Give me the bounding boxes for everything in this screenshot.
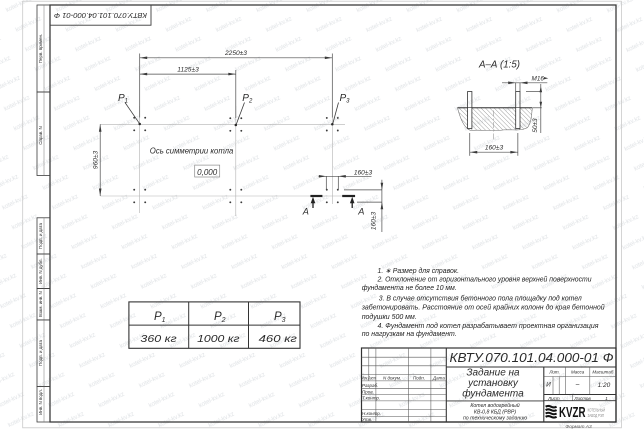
svg-text:КВТУ.070.101.04.000-01 Ф: КВТУ.070.101.04.000-01 Ф [54, 11, 147, 20]
svg-text:Инв. N дубл.: Инв. N дубл. [38, 258, 43, 284]
svg-text:Листов: Листов [573, 396, 591, 401]
svg-text:KVZR: KVZR [559, 405, 586, 421]
svg-text:Подп. и дата: Подп. и дата [38, 223, 43, 249]
svg-text:1125±3: 1125±3 [177, 66, 199, 73]
svg-text:Инв. N подл.: Инв. N подл. [38, 389, 43, 415]
svg-text:забетонировать. Расстояние от: забетонировать. Расстояние от осей крайн… [361, 303, 605, 312]
svg-text:по техническому заданию: по техническому заданию [463, 416, 527, 422]
svg-text:N докум.: N докум. [383, 375, 401, 380]
svg-text:Лит.: Лит. [548, 369, 560, 374]
svg-text:Утв.: Утв. [362, 417, 372, 422]
svg-text:360 кг: 360 кг [140, 333, 176, 345]
svg-text:КОТЕЛЬНЫЙ: КОТЕЛЬНЫЙ [588, 408, 606, 413]
svg-text:Ось симметрии котла: Ось симметрии котла [150, 146, 234, 156]
svg-text:КВТУ.070.101.04.000-01 Ф: КВТУ.070.101.04.000-01 Ф [450, 350, 614, 365]
svg-text:960±3: 960±3 [93, 151, 100, 170]
svg-text:фундамента не более 10 мм.: фундамента не более 10 мм. [362, 283, 457, 292]
svg-text:Н.контр.: Н.контр. [362, 411, 381, 416]
svg-text:2250±3: 2250±3 [224, 50, 247, 57]
svg-text:А–А (1:5): А–А (1:5) [478, 59, 520, 70]
svg-text:Т.контр.: Т.контр. [362, 396, 380, 401]
svg-text:Масштаб: Масштаб [592, 369, 613, 374]
svg-text:160±3: 160±3 [485, 145, 504, 152]
svg-text:Подп. и дата: Подп. и дата [38, 340, 43, 366]
svg-text:фундамента: фундамента [462, 388, 524, 400]
svg-text:3. В случае отсутствия бетонно: 3. В случае отсутствия бетонного пола пл… [379, 293, 582, 302]
svg-text:0,000: 0,000 [197, 168, 218, 177]
svg-text:Взам. инв. N: Взам. инв. N [38, 291, 43, 317]
svg-text:А: А [357, 206, 364, 216]
svg-text:1:20: 1:20 [598, 382, 611, 389]
svg-text:Задание на: Задание на [466, 367, 520, 378]
svg-text:50±3: 50±3 [532, 118, 539, 133]
svg-text:ЗАВОД РЭП: ЗАВОД РЭП [588, 413, 605, 418]
svg-text:160±3: 160±3 [370, 212, 377, 231]
svg-text:–: – [575, 382, 580, 389]
svg-text:Справ. N: Справ. N [38, 126, 43, 144]
svg-text:Лист: Лист [547, 396, 560, 401]
svg-text:Перв. примен.: Перв. примен. [38, 34, 43, 63]
svg-text:Котел водогрейный: Котел водогрейный [470, 402, 519, 409]
svg-text:М16: М16 [532, 76, 545, 83]
svg-text:160±3: 160±3 [354, 170, 373, 177]
svg-text:Подп.: Подп. [413, 375, 425, 380]
svg-text:А: А [302, 206, 309, 216]
svg-text:установку: установку [467, 378, 519, 389]
svg-text:Формат А3: Формат А3 [565, 424, 592, 430]
svg-text:Дата: Дата [432, 375, 445, 380]
svg-text:460 кг: 460 кг [259, 333, 297, 345]
svg-text:Разраб.: Разраб. [362, 383, 378, 388]
svg-text:КВ-0,8 КБД (РВР): КВ-0,8 КБД (РВР) [474, 409, 516, 415]
svg-text:подушки 500 мм.: подушки 500 мм. [362, 312, 417, 321]
svg-text:Масса: Масса [571, 369, 585, 374]
svg-text:Пров.: Пров. [362, 390, 374, 395]
svg-text:1000 кг: 1000 кг [197, 333, 240, 345]
svg-text:по нагрузкам на фундамент.: по нагрузкам на фундамент. [362, 329, 457, 338]
svg-text:И: И [546, 382, 551, 389]
svg-text:Изм.Лист: Изм.Лист [362, 375, 376, 380]
svg-text:2. Отклонение от горизонтально: 2. Отклонение от горизонтального уровня … [377, 274, 592, 283]
